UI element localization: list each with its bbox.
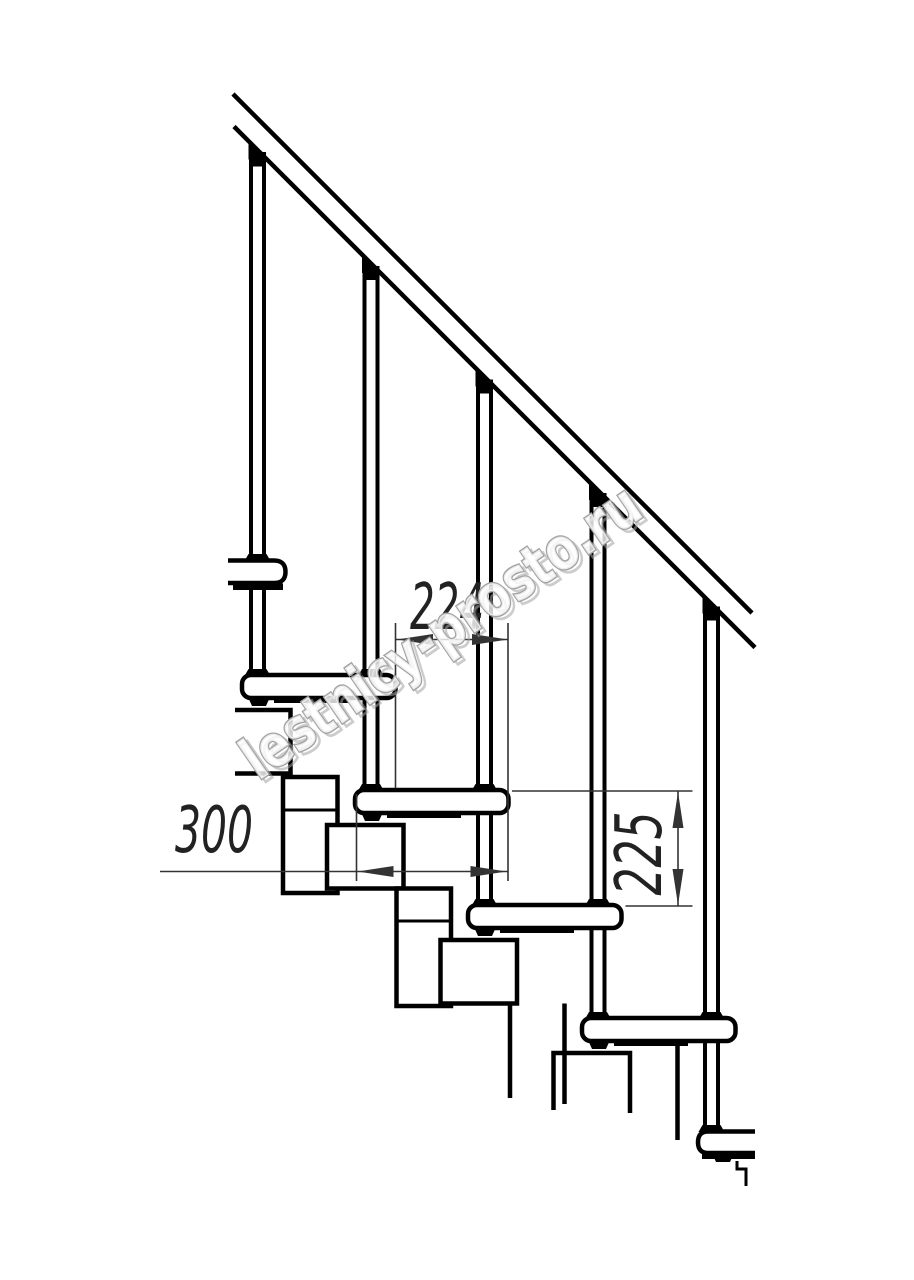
mount-tab [474, 927, 496, 936]
staircase-drawing-svg: 224 300 225 lestnicy-prosto.ru lestnicy-… [0, 0, 914, 1280]
module-box [441, 940, 518, 1004]
mount-tab [361, 812, 383, 821]
baluster-cap [245, 669, 271, 676]
dimension-label-riser-height: 225 [603, 812, 677, 896]
staircase-drawing: 224 300 225 lestnicy-prosto.ru lestnicy-… [0, 0, 914, 1280]
tread [355, 790, 509, 813]
dimension-riser-height: 225 [512, 791, 693, 906]
tread-cut-top [228, 561, 286, 584]
mount-tab [248, 697, 270, 706]
mount-plate [387, 812, 461, 819]
module-cut-step [737, 1161, 746, 1186]
tread [582, 1018, 736, 1041]
tread [468, 905, 622, 928]
mount-tab [712, 1153, 734, 1162]
baluster [703, 596, 721, 1126]
baluster-cap [585, 1012, 611, 1019]
arrowhead-right-icon [471, 866, 507, 877]
tread-cut-bottom [698, 1132, 755, 1154]
mount-plate [500, 927, 574, 934]
module-box [327, 825, 404, 889]
baluster-cap [699, 1012, 725, 1019]
mount-plate [233, 584, 283, 591]
baluster-cap [585, 899, 611, 906]
baluster-cap [358, 784, 384, 791]
mount-plate [614, 1040, 688, 1047]
baluster-cap [472, 784, 498, 791]
dimension-label-tread-depth: 300 [175, 794, 253, 868]
mount-tab [588, 1040, 610, 1049]
baluster-cap [245, 554, 271, 561]
baluster-cap [699, 1125, 725, 1132]
baluster-cap [472, 899, 498, 906]
